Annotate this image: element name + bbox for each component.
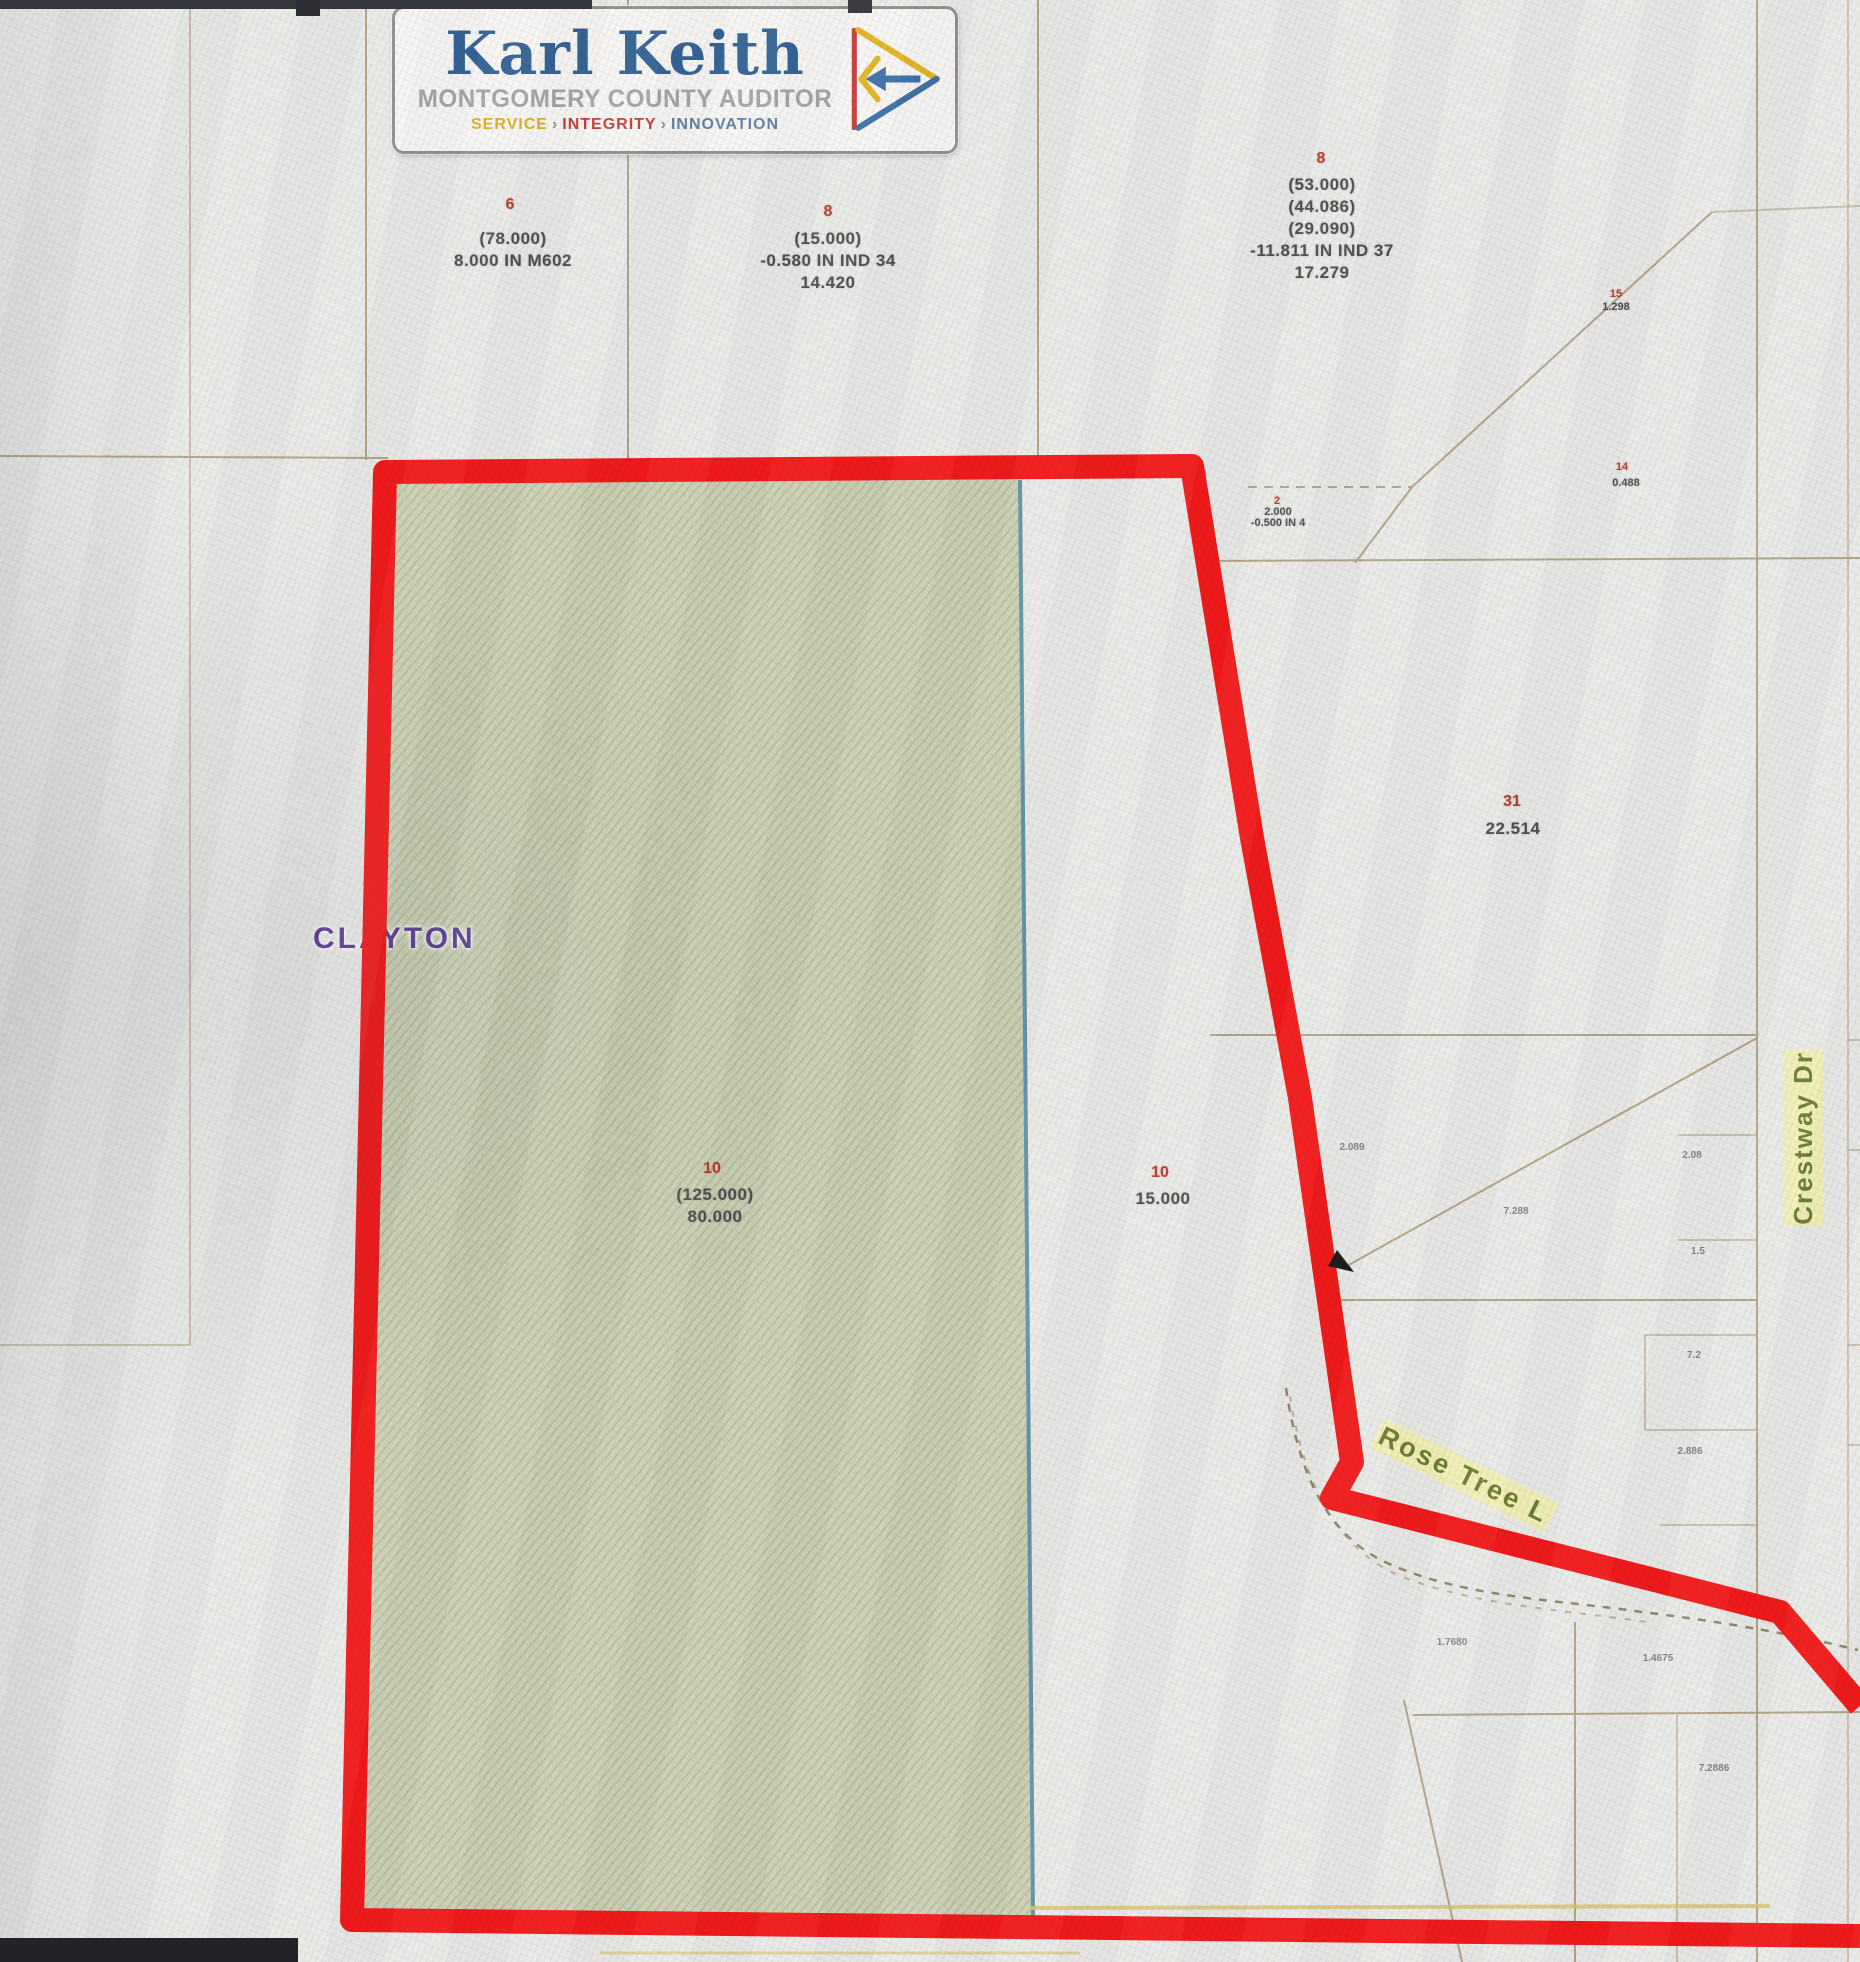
tagline-service: SERVICE [471,116,548,133]
window-edge-top-step [296,0,320,16]
parcel-map[interactable]: 6 (78.000) 8.000 IN M602 8 (15.000) -0.5… [0,0,1860,1962]
auditor-name: Karl Keith [409,24,841,85]
tagline-separator: › [548,116,562,133]
tagline-separator: › [657,116,671,133]
tagline-integrity: INTEGRITY [562,116,656,133]
selection-boundary-layer [0,0,1860,1962]
auditor-arrow-icon [847,20,945,138]
window-edge-top-mark [848,0,872,13]
selected-parcel-outline [352,466,1860,1936]
auditor-title: MONTGOMERY COUNTY AUDITOR [415,86,834,114]
auditor-logo: Karl Keith MONTGOMERY COUNTY AUDITOR SER… [392,6,958,154]
tagline-innovation: INNOVATION [671,116,779,133]
auditor-tagline: SERVICE›INTEGRITY›INNOVATION [409,116,841,134]
window-edge-bottom [0,1938,298,1962]
auditor-logo-text: Karl Keith MONTGOMERY COUNTY AUDITOR SER… [409,24,841,134]
